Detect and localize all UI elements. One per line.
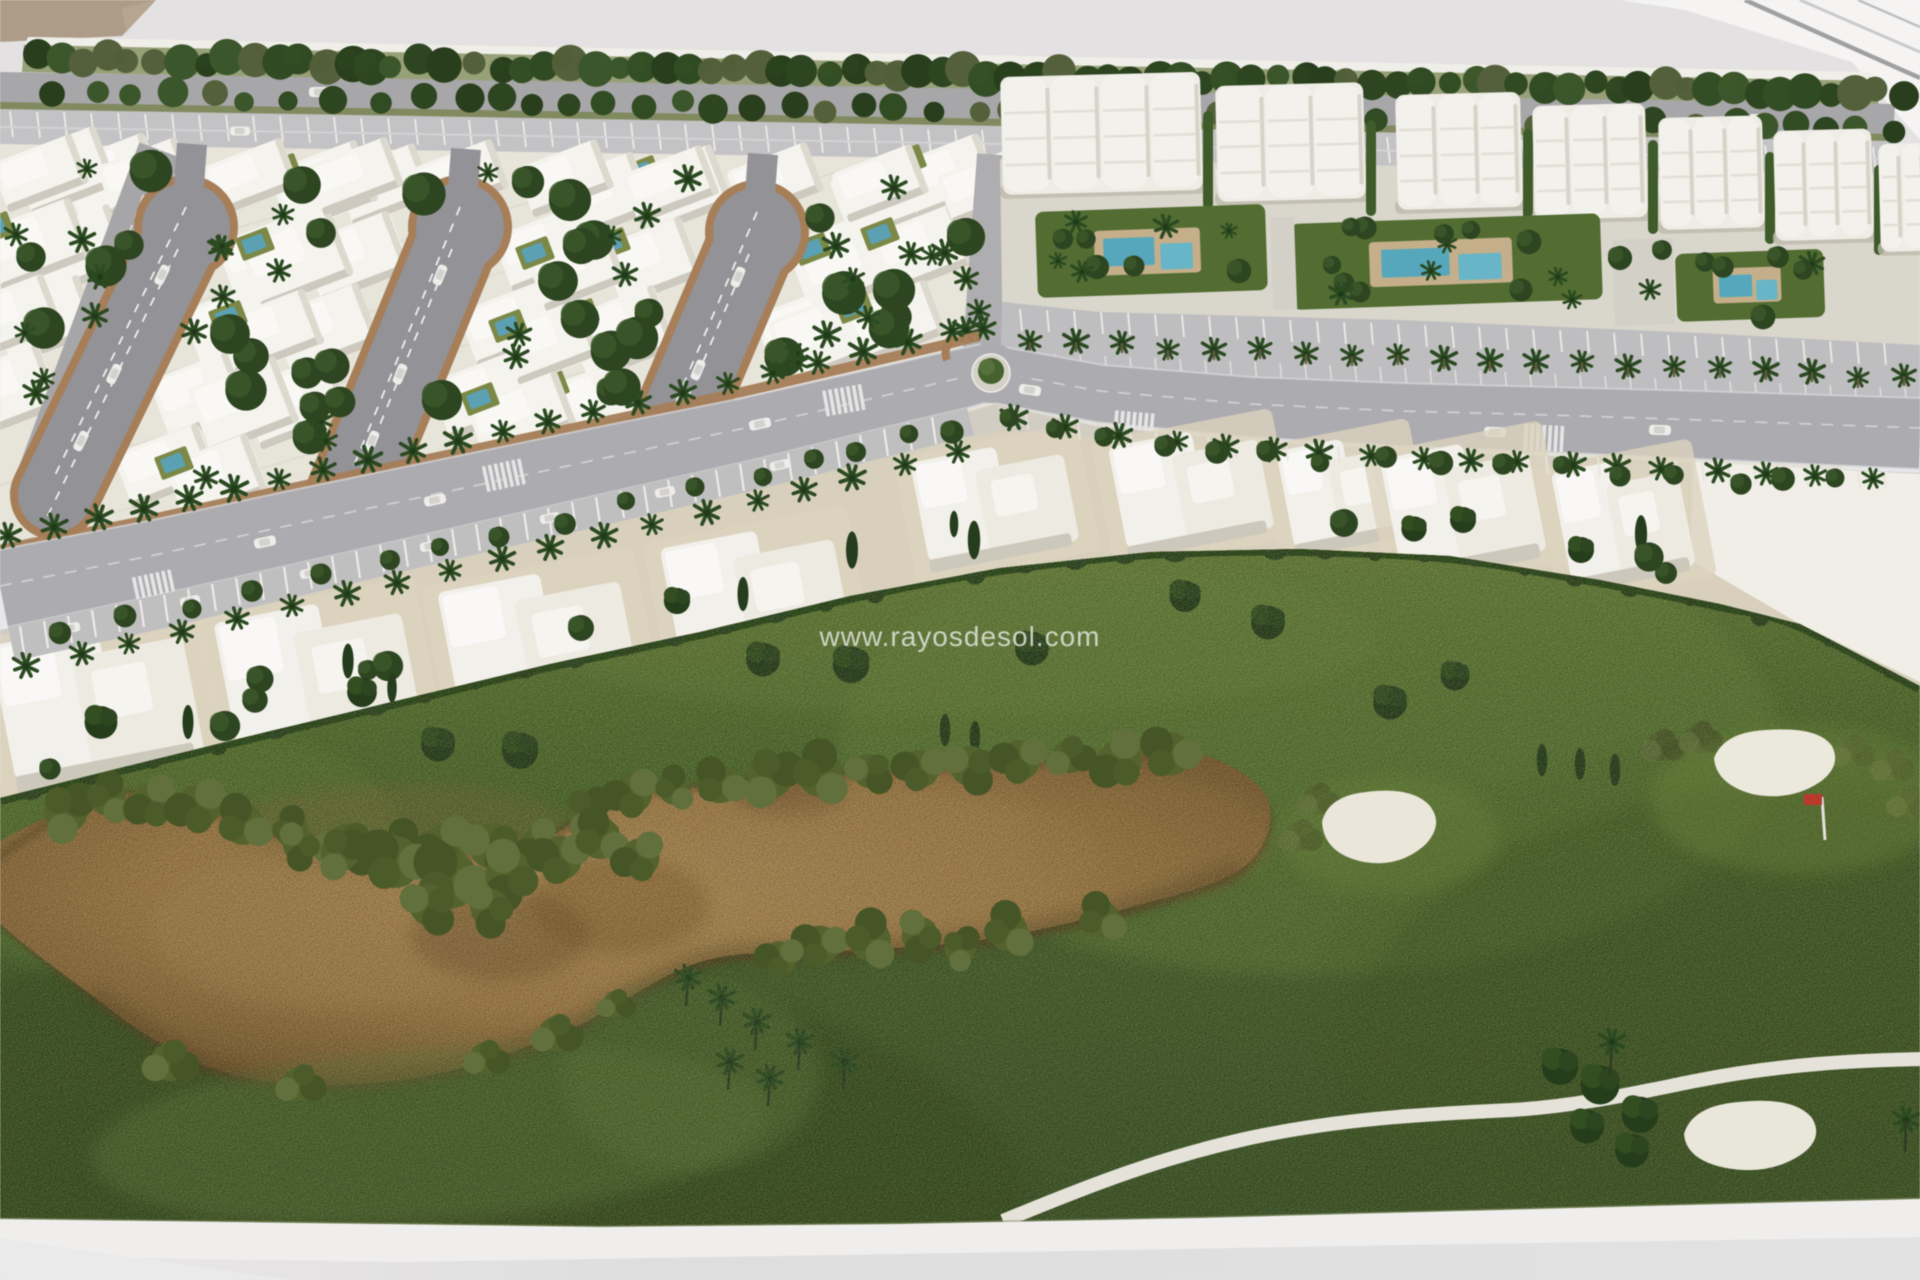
svg-text:www.rayosdesol.com: www.rayosdesol.com [819,621,1101,652]
